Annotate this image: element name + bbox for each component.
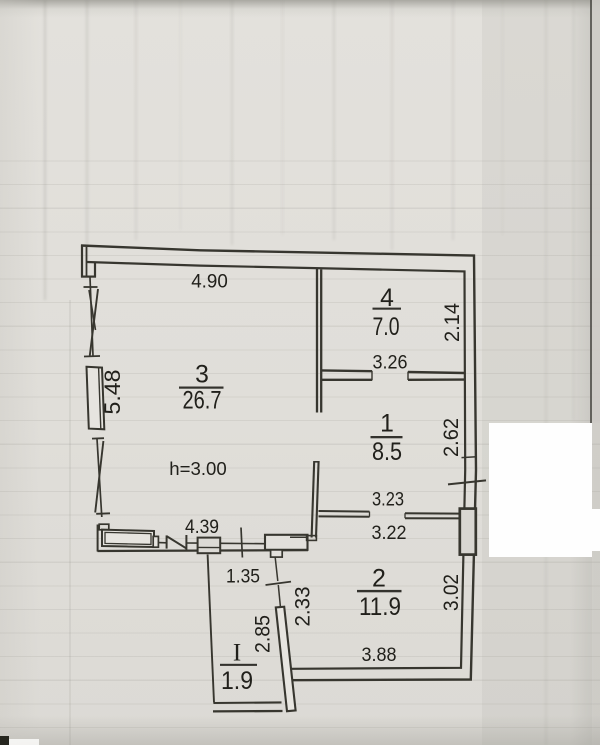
- svg-text:2: 2: [372, 565, 386, 593]
- svg-text:4.90: 4.90: [191, 271, 228, 293]
- svg-text:2.14: 2.14: [441, 303, 464, 342]
- svg-text:1.35: 1.35: [226, 566, 260, 588]
- svg-text:4.39: 4.39: [185, 516, 219, 538]
- svg-text:26.7: 26.7: [183, 387, 222, 414]
- svg-text:3.23: 3.23: [372, 489, 404, 511]
- svg-text:3.02: 3.02: [440, 574, 463, 611]
- svg-text:I: I: [233, 639, 241, 666]
- svg-text:3.22: 3.22: [372, 522, 407, 544]
- svg-text:8.5: 8.5: [372, 439, 402, 466]
- svg-text:h=3.00: h=3.00: [169, 458, 226, 479]
- svg-text:1.9: 1.9: [221, 668, 253, 695]
- svg-text:7.0: 7.0: [373, 314, 400, 341]
- svg-text:2.85: 2.85: [251, 615, 274, 653]
- svg-text:3.88: 3.88: [362, 644, 397, 666]
- svg-text:1: 1: [380, 411, 394, 438]
- svg-text:11.9: 11.9: [359, 593, 401, 621]
- svg-text:2.33: 2.33: [291, 587, 314, 627]
- svg-text:5.48: 5.48: [100, 370, 125, 415]
- svg-text:3: 3: [195, 362, 209, 389]
- svg-text:2.62: 2.62: [440, 418, 463, 457]
- svg-text:3.26: 3.26: [373, 352, 408, 374]
